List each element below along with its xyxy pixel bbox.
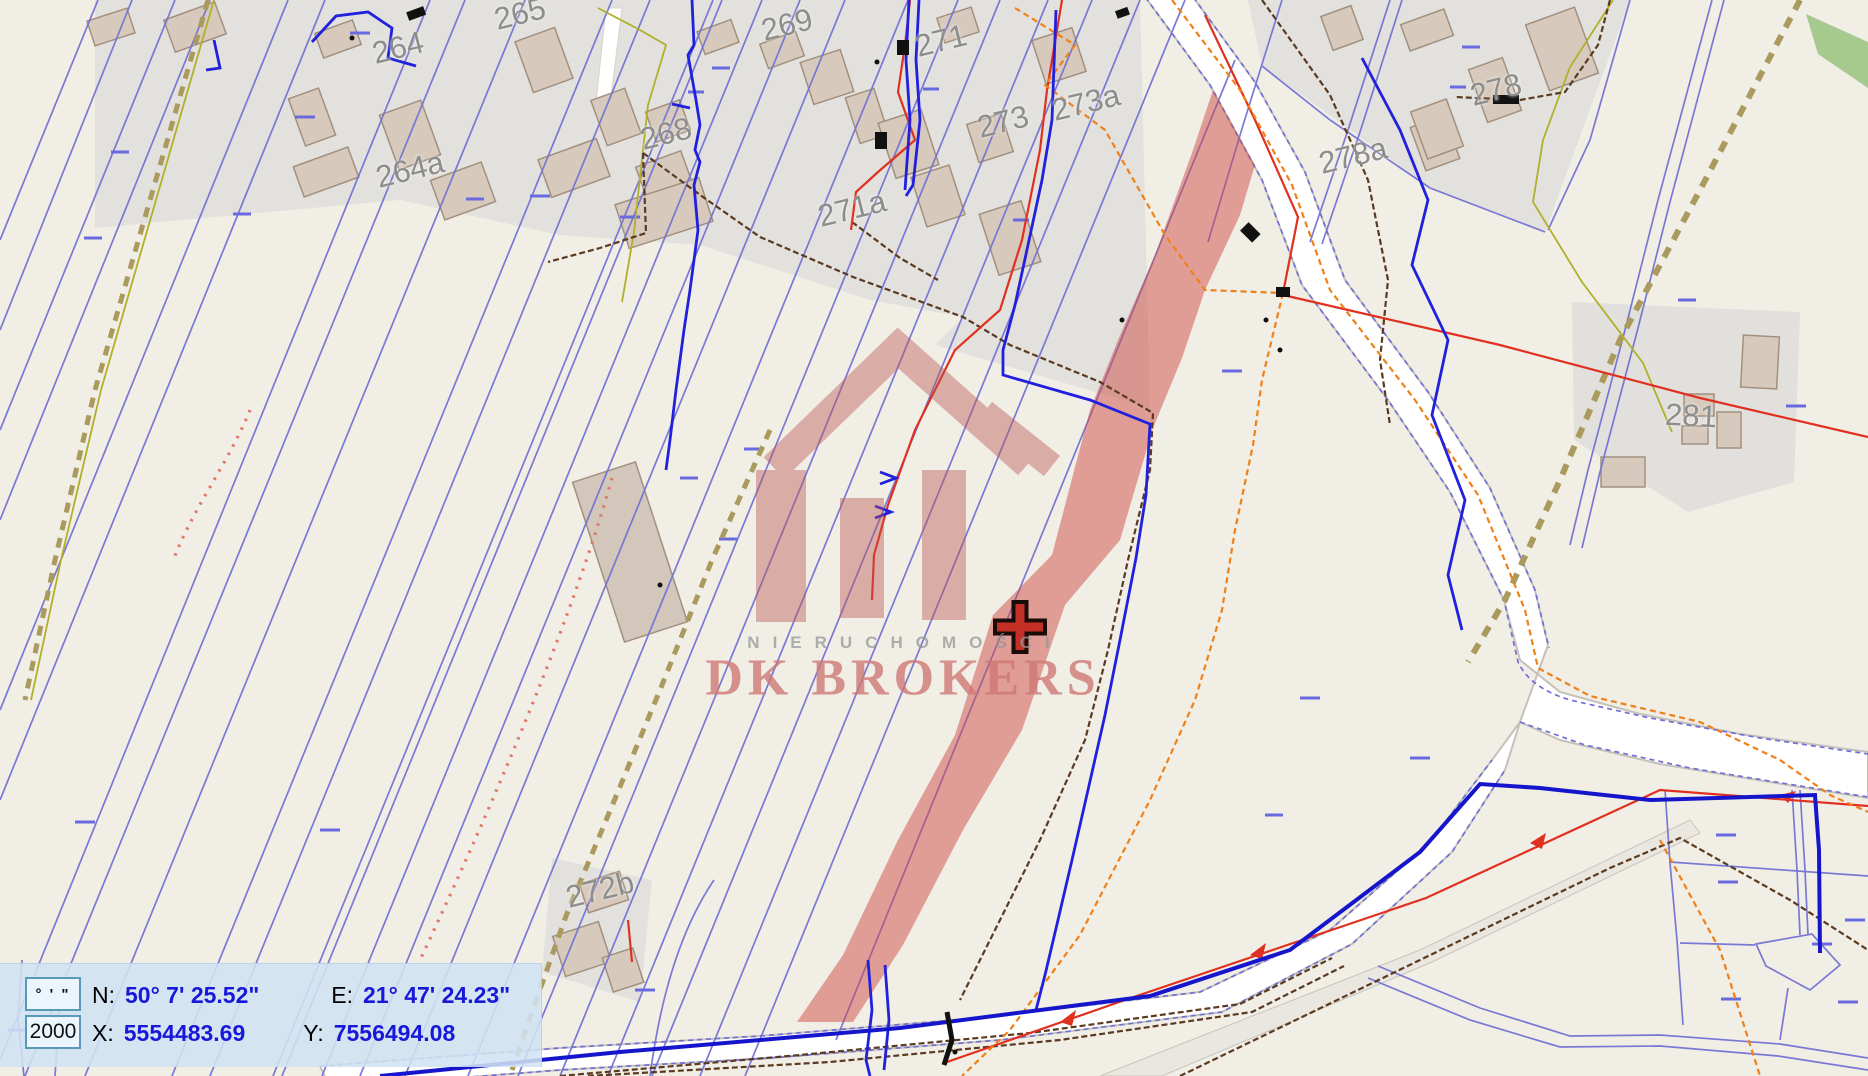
coordinate-panel: ° ' " 2000 N: 50° 7' 25.52" E: 21° 47' 2… <box>0 963 542 1067</box>
latitude-value: 50° 7' 25.52" <box>125 982 259 1009</box>
y-coordinate-label: Y: <box>303 1020 323 1047</box>
scale-input[interactable]: 2000 <box>25 1015 81 1049</box>
longitude-value: 21° 47' 24.23" <box>363 982 510 1009</box>
dms-format-button[interactable]: ° ' " <box>25 977 81 1011</box>
map-viewer: 264264a265268269271271a273273a278278a281… <box>0 0 1868 1076</box>
longitude-label: E: <box>331 982 353 1009</box>
y-coordinate-value: 7556494.08 <box>334 1020 456 1047</box>
x-coordinate-value: 5554483.69 <box>124 1020 246 1047</box>
x-coordinate-label: X: <box>92 1020 114 1047</box>
vegetation-strip <box>1806 14 1868 88</box>
map-canvas[interactable] <box>0 0 1868 1076</box>
watermark-logo <box>756 348 1052 622</box>
latitude-label: N: <box>92 982 115 1009</box>
